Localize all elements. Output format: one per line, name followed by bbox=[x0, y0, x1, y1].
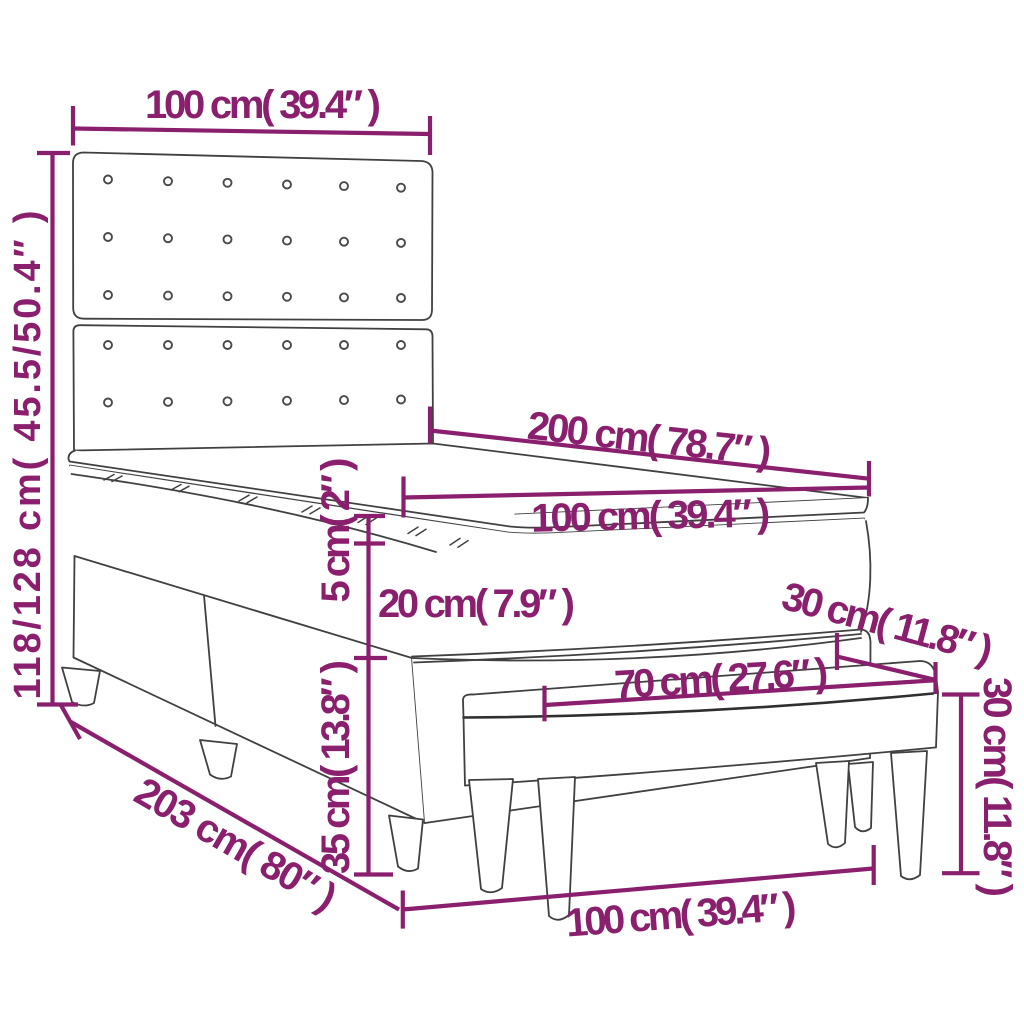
svg-text:5 cm( 2″ ): 5 cm( 2″ ) bbox=[314, 458, 358, 603]
svg-text:35 cm( 13.8″ ): 35 cm( 13.8″ ) bbox=[314, 660, 358, 874]
svg-text:20 cm( 7.9″ ): 20 cm( 7.9″ ) bbox=[378, 582, 575, 626]
svg-text:100 cm( 39.4″ ): 100 cm( 39.4″ ) bbox=[531, 491, 771, 540]
svg-text:100 cm( 39.4″ ): 100 cm( 39.4″ ) bbox=[145, 83, 381, 127]
svg-text:30 cm( 11.8″ ): 30 cm( 11.8″ ) bbox=[975, 677, 1019, 897]
